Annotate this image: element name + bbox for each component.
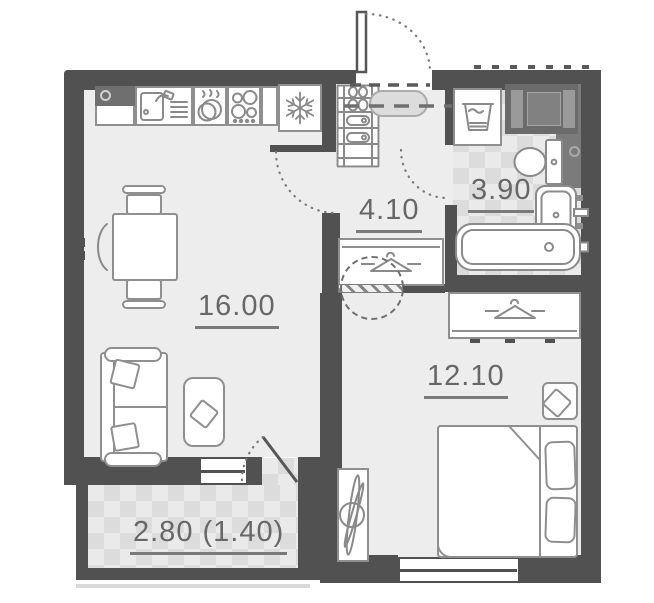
entrance-door-swing-arc (366, 14, 430, 72)
burner-rings-icon (229, 88, 259, 124)
room-area-label-bathroom: 3.90 (468, 174, 534, 213)
sink-with-faucet-icon (137, 88, 191, 124)
room-area-label-bedroom: 12.10 (424, 360, 508, 399)
shelf-center (527, 92, 561, 126)
shelf-side-bar (563, 90, 575, 128)
hanger-icon (485, 299, 545, 323)
floor-plan: 16.00 4.10 3.90 12.10 2.80 (1.40) (0, 0, 654, 603)
plates-and-drops-icon (195, 88, 225, 124)
living-balcony-window (199, 457, 248, 485)
window-mullion (400, 569, 517, 572)
wall-kitchen-stub (270, 145, 322, 152)
dining-chair-back (122, 300, 166, 309)
kitchen-sink-unit (135, 86, 193, 126)
sofa-armrest (104, 347, 162, 362)
knob-circle (100, 90, 111, 101)
sofa-armrest (104, 452, 162, 467)
radiator-tick (79, 251, 85, 260)
bed-blanket (437, 425, 541, 558)
shelf-side-bar (511, 90, 523, 128)
bed-pillow (544, 440, 577, 490)
dishwasher-unit (193, 86, 227, 126)
wall-bedroom-bottom-right (520, 555, 601, 583)
room-area-label-balcony: 2.80 (1.40) (130, 516, 287, 555)
wall-right (581, 70, 601, 583)
counter-filler (261, 86, 278, 126)
wall-living-bottom-hinge (298, 457, 322, 485)
radiator-tick (79, 238, 85, 247)
cooktop-unit (227, 86, 261, 126)
bathroom-shelf (505, 84, 578, 134)
wall-balcony-left (76, 470, 88, 580)
balcony-outer-sill (76, 584, 310, 588)
dining-chair-back (122, 185, 166, 194)
bedroom-window (398, 557, 520, 583)
opening-highlight-circle (340, 256, 404, 320)
mezzanine-outline (369, 90, 428, 117)
bathtub (454, 222, 590, 274)
wall-bathroom-bottom (445, 275, 601, 292)
dining-chair-seat (126, 279, 162, 300)
bed-pillow (544, 496, 577, 543)
wardrobe-rod-line (452, 330, 577, 332)
wardrobe-foot (505, 339, 515, 343)
room-area-label-living: 16.00 (195, 290, 279, 329)
dining-table (112, 213, 178, 281)
wall-left (64, 70, 84, 480)
wall-balcony-right (298, 485, 320, 580)
wall-living-bottom-b (248, 457, 262, 485)
refrigerator (278, 84, 322, 132)
wall-balcony-bottom (76, 568, 310, 580)
window-mullion (201, 470, 245, 473)
bedroom-wardrobe (448, 292, 581, 339)
room-area-label-hallway: 4.10 (356, 194, 422, 233)
wardrobe-rod-line (342, 246, 440, 248)
entrance-door-leaf (357, 12, 366, 72)
towel-ring (569, 146, 580, 157)
wardrobe-foot (545, 339, 555, 343)
dining-chair-curved (92, 222, 110, 272)
kitchen-corner-unit (95, 86, 135, 126)
balcony-doorway-floor (262, 458, 298, 485)
standing-mirror (337, 468, 369, 562)
wardrobe-foot (470, 339, 480, 343)
sofa-pillow (110, 422, 140, 452)
sofa-seat-line (115, 406, 166, 408)
snowflake-icon (280, 86, 320, 130)
dining-chair-seat (126, 194, 162, 215)
laundry-basin-icon (461, 98, 495, 136)
washing-machine (453, 88, 502, 146)
